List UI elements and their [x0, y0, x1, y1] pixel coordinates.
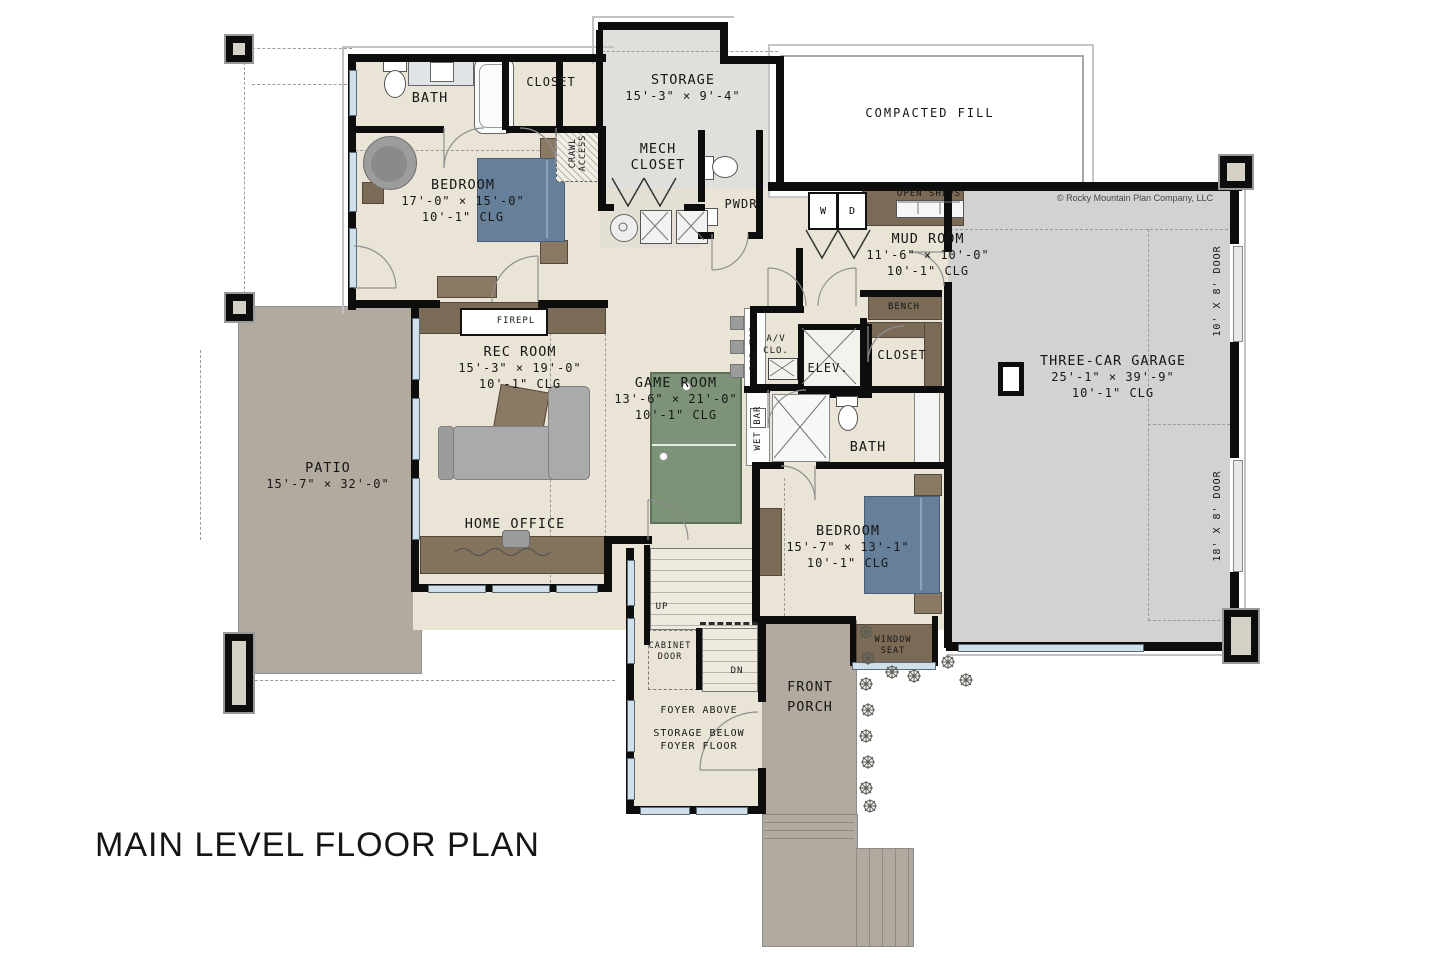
copyright-text: © Rocky Mountain Plan Company, LLC — [1057, 193, 1213, 203]
cabinet-door-line2: DOOR — [649, 652, 692, 663]
mech-line2: CLOSET — [631, 157, 686, 173]
garage-dims: 25'-1" × 39'-9" — [1040, 369, 1186, 385]
storage-below-line1: STORAGE BELOW — [653, 727, 744, 740]
compacted-fill-label: COMPACTED FILL — [865, 105, 994, 121]
patio-dims: 15'-7" × 32'-0" — [266, 476, 389, 492]
mudroom-label: MUD ROOM 11'-6" × 10'-0" 10'-1" CLG — [866, 231, 989, 279]
closet2-label: CLOSET — [877, 347, 926, 363]
pwdr-label: PWDR — [725, 196, 758, 212]
crawl-access-label: CRAWL ACCESS — [568, 135, 588, 172]
rec-name: REC ROOM — [458, 344, 581, 360]
mudroom-name: MUD ROOM — [866, 231, 989, 247]
water-heater-center — [619, 223, 627, 231]
cabinet-door-line1: CABINET — [649, 641, 692, 652]
garage-label: THREE-CAR GARAGE 25'-1" × 39'-9" 10'-1" … — [1040, 353, 1186, 401]
bedroom1-label: BEDROOM 17'-0" × 15'-0" 10'-1" CLG — [401, 177, 524, 225]
mudroom-dims: 11'-6" × 10'-0" — [866, 247, 989, 263]
window-seat-label: WINDOW SEAT — [875, 635, 912, 657]
page-title: MAIN LEVEL FLOOR PLAN — [95, 826, 540, 865]
mudroom-clg: 10'-1" CLG — [866, 263, 989, 279]
window-seat-line1: WINDOW — [875, 635, 912, 646]
rec-clg: 10'-1" CLG — [458, 376, 581, 392]
game-name: GAME ROOM — [614, 375, 737, 391]
bedroom2-clg: 10'-1" CLG — [786, 555, 909, 571]
mech-closet-label: MECH CLOSET — [631, 141, 686, 173]
storage-label: STORAGE 15'-3" × 9'-4" — [625, 72, 740, 104]
dn-label: DN — [731, 663, 744, 679]
bedroom1-name: BEDROOM — [401, 177, 524, 193]
mech-line1: MECH — [631, 141, 686, 157]
garage-door-small-label: 10' X 8' DOOR — [1210, 245, 1226, 336]
front-porch-label: FRONT PORCH — [787, 677, 833, 717]
home-office-label: HOME OFFICE — [465, 516, 565, 532]
open-shlvs-label: OPEN SHLVS — [897, 186, 961, 202]
storage-name: STORAGE — [625, 72, 740, 88]
closet1-label: CLOSET — [526, 74, 575, 90]
storage-below-label: STORAGE BELOW FOYER FLOOR — [653, 727, 744, 753]
bedroom2-label: BEDROOM 15'-7" × 13'-1" 10'-1" CLG — [786, 523, 909, 571]
bedroom1-clg: 10'-1" CLG — [401, 209, 524, 225]
bifold-doors — [612, 178, 870, 258]
garage-clg: 10'-1" CLG — [1040, 385, 1186, 401]
desk-squiggle — [455, 549, 551, 556]
bedroom1-dims: 17'-0" × 15'-0" — [401, 193, 524, 209]
up-label: UP — [656, 599, 669, 615]
storage-below-line2: FOYER FLOOR — [653, 740, 744, 753]
bedroom2-dims: 15'-7" × 13'-1" — [786, 539, 909, 555]
rec-dims: 15'-3" × 19'-0" — [458, 360, 581, 376]
bedroom2-name: BEDROOM — [786, 523, 909, 539]
av-line1: A/V — [763, 333, 789, 345]
patio-name: PATIO — [266, 460, 389, 476]
av-line2: CLO. — [763, 345, 789, 357]
bench-label: BENCH — [888, 299, 920, 315]
garage-name: THREE-CAR GARAGE — [1040, 353, 1186, 369]
crawl-line1: CRAWL — [568, 135, 578, 172]
wet-bar-label: WET BAR — [750, 406, 766, 451]
porch-line1: FRONT — [787, 677, 833, 697]
storage-dims: 15'-3" × 9'-4" — [625, 88, 740, 104]
elev-label: ELEV. — [807, 360, 848, 376]
crawl-line2: ACCESS — [578, 135, 588, 172]
patio-label: PATIO 15'-7" × 32'-0" — [266, 460, 389, 492]
cabinet-door-label: CABINET DOOR — [649, 641, 692, 663]
game-room-label: GAME ROOM 13'-6" × 21'-0" 10'-1" CLG — [614, 375, 737, 423]
firepl-label: FIREPL — [497, 313, 536, 329]
window-seat-line2: SEAT — [875, 646, 912, 657]
av-closet-label: A/V CLO. — [763, 333, 789, 357]
annotation-overlay — [0, 0, 1445, 963]
garage-door-large-label: 18' X 8' DOOR — [1210, 470, 1226, 561]
game-dims: 13'-6" × 21'-0" — [614, 391, 737, 407]
game-clg: 10'-1" CLG — [614, 407, 737, 423]
rec-room-label: REC ROOM 15'-3" × 19'-0" 10'-1" CLG — [458, 344, 581, 392]
floor-plan-canvas: W D — [0, 0, 1445, 963]
bath1-label: BATH — [412, 90, 449, 106]
porch-line2: PORCH — [787, 697, 833, 717]
bar-top-label: BAR TOP — [746, 326, 762, 371]
bath2-label: BATH — [850, 439, 887, 455]
foyer-above-label: FOYER ABOVE — [660, 703, 737, 719]
